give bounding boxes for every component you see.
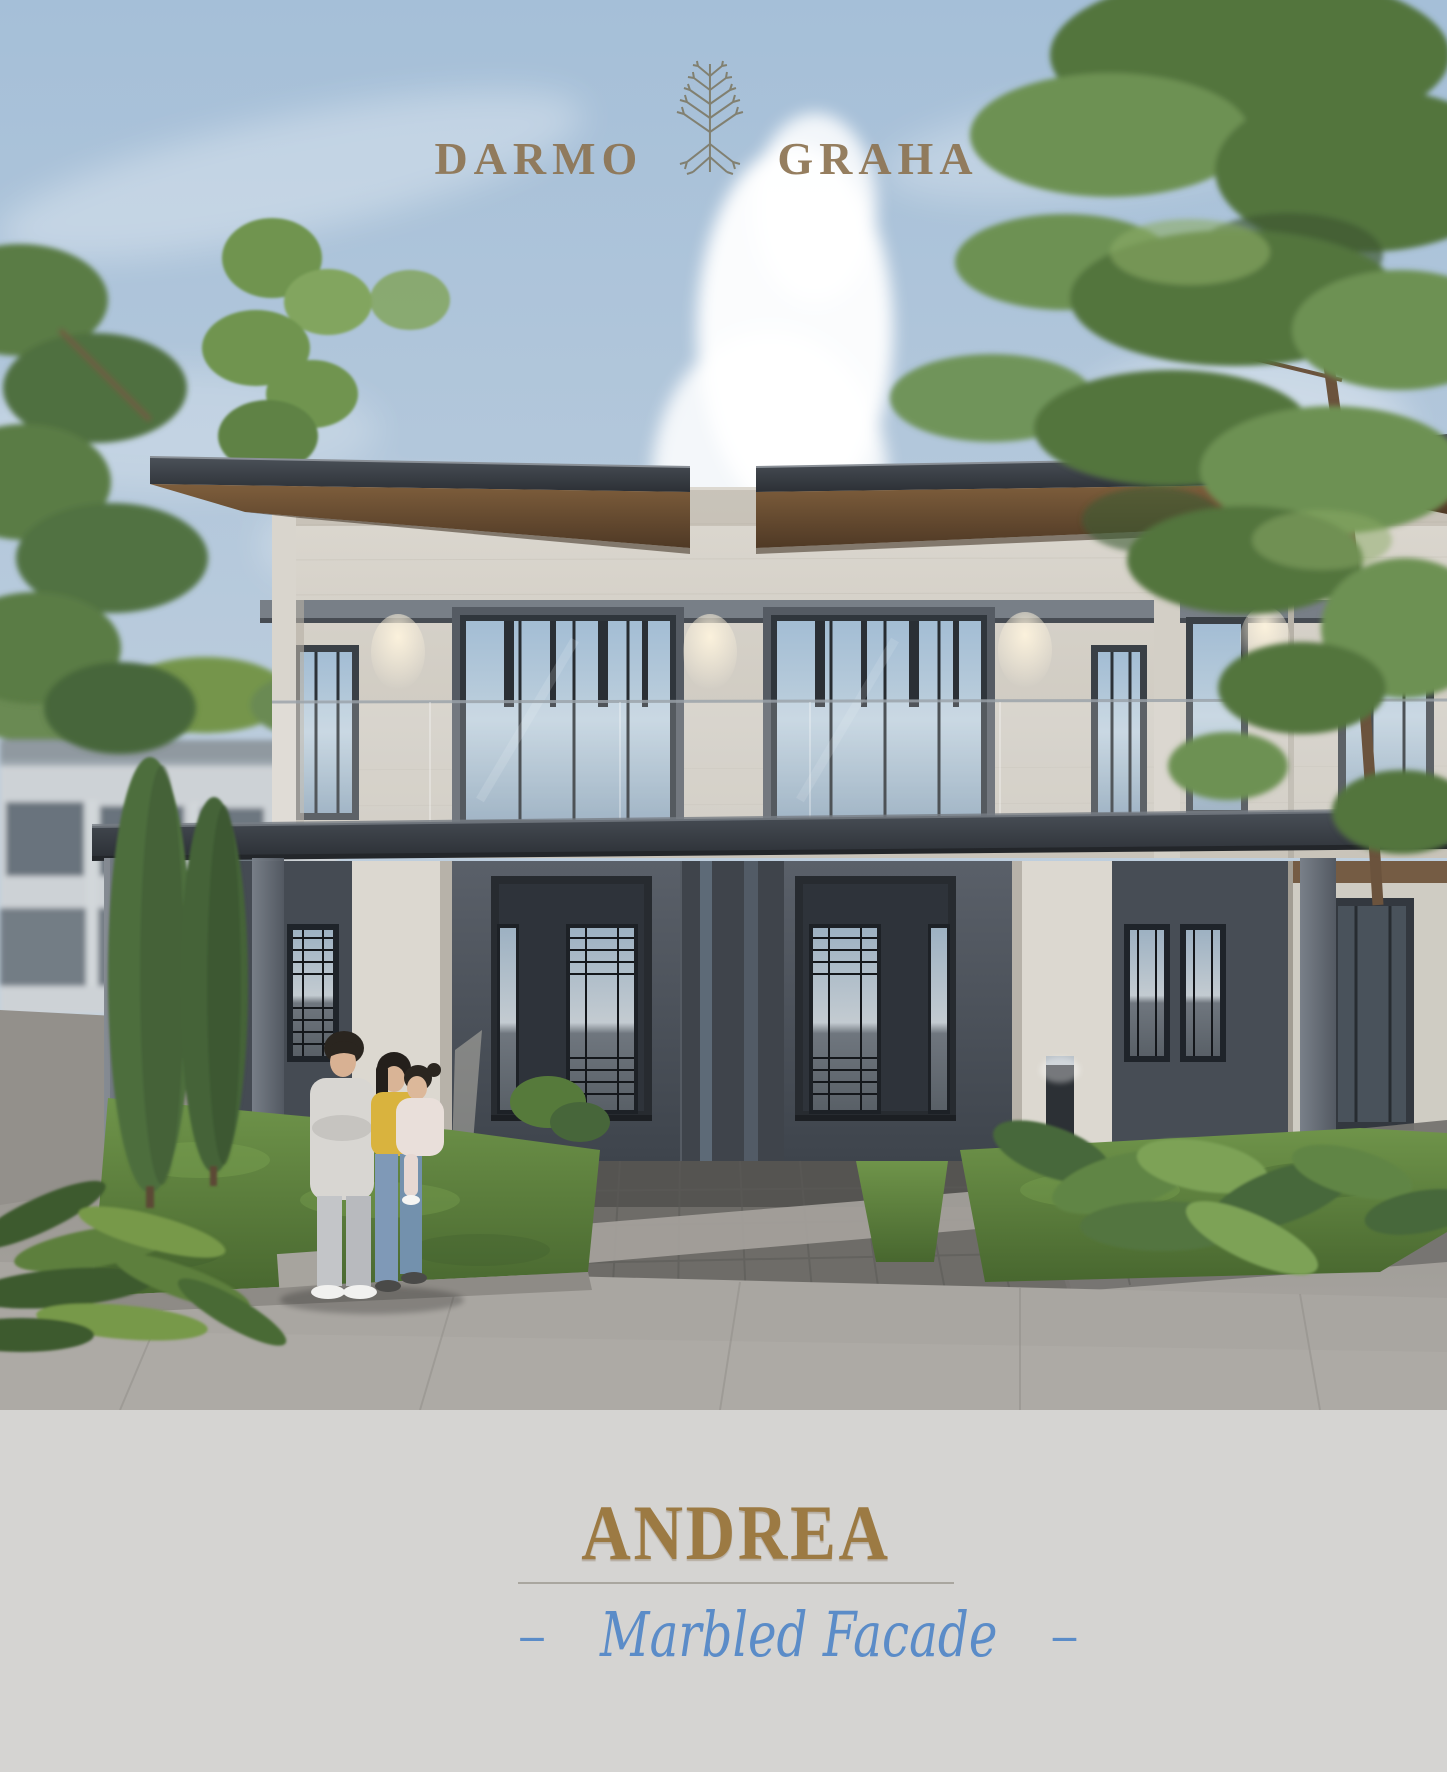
subtitle-dash-left: – — [521, 1612, 544, 1658]
subtitle-dash-right: – — [1053, 1612, 1076, 1658]
brand-logo: DARMO GRAHA — [434, 60, 978, 186]
party-wall-fin — [680, 861, 784, 1167]
title-divider — [518, 1582, 954, 1584]
product-subtitle: Marbled Facade — [600, 1602, 997, 1667]
brand-word-graha: GRAHA — [777, 136, 978, 182]
brand-word-darmo: DARMO — [434, 136, 643, 182]
product-title: ANDREA — [507, 1494, 965, 1572]
third-unit-window — [1330, 898, 1414, 1130]
poster-page: DARMO GRAHA ANDREA – Marbled Facade – — [0, 0, 1447, 1772]
scene-render — [0, 0, 1447, 1410]
footer-content: ANDREA – Marbled Facade – — [476, 1410, 996, 1667]
footer-band: ANDREA – Marbled Facade – — [0, 1410, 1447, 1772]
subtitle-row: – Marbled Facade – — [521, 1602, 951, 1667]
grille-window-right-a — [1124, 924, 1170, 1062]
pine-tree-logo-icon — [671, 60, 749, 186]
grille-window-right-b — [1180, 924, 1226, 1062]
entry-door-right — [795, 876, 956, 1121]
